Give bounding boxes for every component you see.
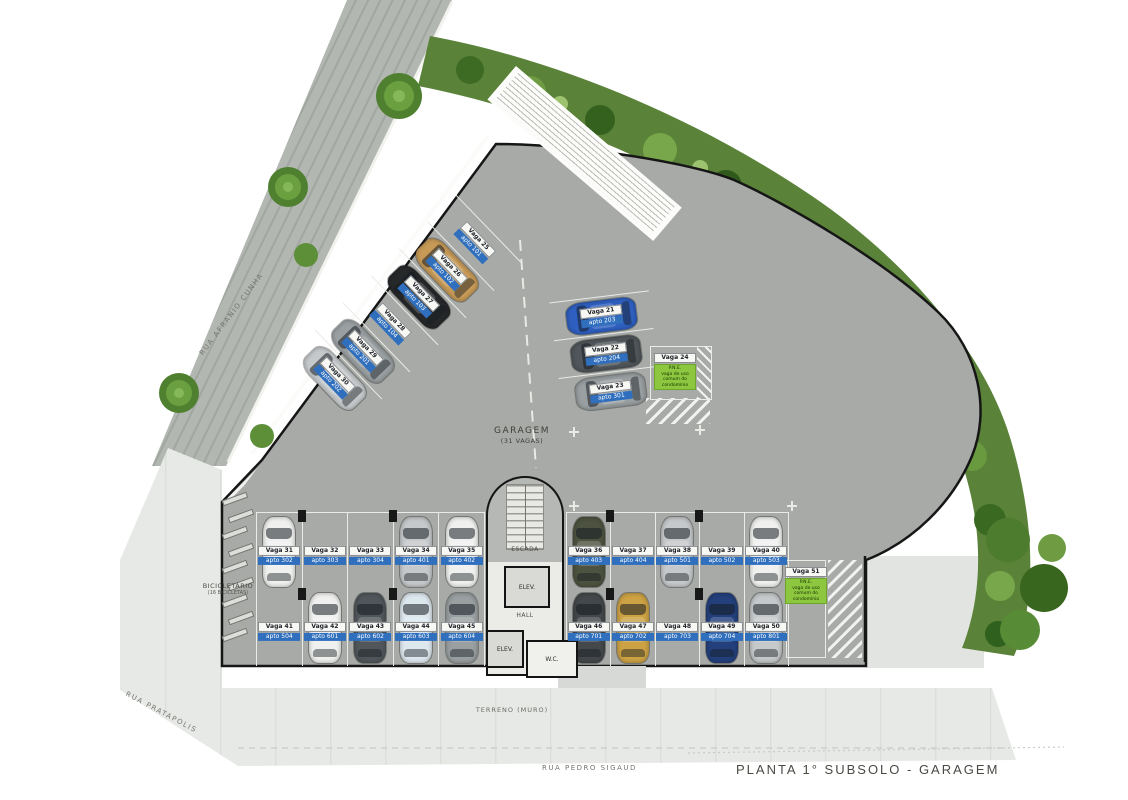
stall-tag: Vaga 38apto 501 (656, 545, 698, 564)
windshield (403, 528, 429, 539)
column-post (389, 588, 397, 600)
parking-stall: Vaga 32apto 303 (303, 513, 348, 590)
stall-tag-apto: apto 501 (656, 556, 698, 564)
stall-tag: Vaga 45apto 604 (441, 622, 483, 641)
parking-bay: Vaga 39apto 502Vaga 49apto 704 (699, 513, 743, 666)
windshield (664, 528, 690, 539)
stall-tag: Vaga 41apto 504 (258, 622, 300, 641)
stall-tag-vaga: Vaga 47 (612, 622, 654, 632)
windshield (357, 604, 383, 615)
site-plan-canvas: RUA AFRANIO CUNHA RUA PRATAPOLIS RUA PED… (0, 0, 1128, 800)
stall-tag: Vaga 37apto 404 (612, 545, 654, 564)
stall-tag-vaga: Vaga 45 (441, 622, 483, 632)
stall-tag: Vaga 40apto 503 (745, 545, 787, 564)
bike-rack-icon (228, 543, 254, 558)
stall-tag: Vaga 49apto 704 (701, 622, 743, 641)
column-post (389, 510, 397, 522)
stall-tag-vaga: Vaga 46 (568, 622, 610, 632)
stall-tag-vaga: Vaga 48 (656, 622, 698, 632)
core-stairs (506, 484, 544, 550)
stall-tag-vaga: Vaga 42 (304, 622, 346, 632)
bike-rack-icon (222, 526, 248, 541)
stall-tag: Vaga 32apto 303 (304, 545, 346, 564)
stall-tag-apto: apto 801 (745, 633, 787, 641)
parking-stall: Vaga 44apto 603 (394, 590, 439, 666)
windshield (449, 528, 475, 539)
bicicletario-title: BICICLETÁRIO (176, 582, 280, 590)
parking-stall: Vaga 41apto 504 (257, 590, 302, 666)
parking-group-right: Vaga 36apto 403Vaga 46apto 701Vaga 37apt… (566, 512, 789, 666)
stall-tag-apto: apto 701 (568, 633, 610, 641)
column-post (606, 588, 614, 600)
stall-tag: Vaga 31apto 302 (258, 545, 300, 564)
wc-room: W.C. (526, 640, 578, 678)
elevator-room: ELEV. (504, 566, 550, 608)
garage-label: GARAGEM (31 VAGAS) (462, 426, 582, 445)
parking-stall: Vaga 45apto 604 (439, 590, 484, 666)
parking-group-left: Vaga 31apto 302Vaga 41apto 504Vaga 32apt… (256, 512, 485, 666)
windshield (753, 604, 779, 615)
stall-tag-vaga: Vaga 33 (349, 545, 391, 555)
windshield (403, 604, 429, 615)
rear-window (621, 649, 645, 657)
column-post (606, 510, 614, 522)
parking-stall: Vaga 37apto 404 (611, 513, 654, 590)
stall-tag-vaga: Vaga 35 (441, 545, 483, 555)
windshield (576, 604, 602, 615)
stall-tag: Vaga 47apto 702 (612, 622, 654, 641)
stall-tag: Vaga 36apto 403 (568, 545, 610, 564)
stall-tag: Vaga 43apto 602 (349, 622, 391, 641)
terreno-label: TERRENO (MURO) (442, 706, 582, 714)
stall-tag-vaga: Vaga 50 (745, 622, 787, 632)
stall-tag-apto: apto 703 (656, 633, 698, 641)
stall-tag-apto: apto 402 (441, 556, 483, 564)
hatch-stripes (697, 347, 711, 399)
garage-label-title: GARAGEM (462, 426, 582, 436)
parking-bay: Vaga 38apto 501Vaga 48apto 703 (655, 513, 699, 666)
stall-tag-apto: apto 302 (258, 556, 300, 564)
parking-bay: Vaga 35apto 402Vaga 45apto 604 (438, 513, 484, 666)
pne-note: P.N.E. vaga de uso comum do condomínio (654, 364, 696, 390)
stall-tag-apto: apto 602 (349, 633, 391, 641)
bike-rack-icon (228, 611, 254, 626)
page-title: PLANTA 1° SUBSOLO - GARAGEM (736, 762, 999, 777)
stall-tag-vaga: Vaga 41 (258, 622, 300, 632)
parking-group-trio: Vaga 21apto 203Vaga 22apto 204Vaga 23apt… (549, 290, 662, 415)
garage-label-capacity: (31 VAGAS) (462, 437, 582, 445)
stall-tag-vaga: Vaga 49 (701, 622, 743, 632)
parking-stall: Vaga 33apto 304 (348, 513, 393, 590)
stall-tag-vaga: Vaga 44 (395, 622, 437, 632)
rear-window (404, 573, 428, 581)
hatch-zone (828, 560, 862, 658)
column-post (298, 510, 306, 522)
bicicletario-capacity: (16 BICICLETAS) (176, 590, 280, 596)
side-paving (866, 556, 984, 668)
parking-bay: Vaga 33apto 304Vaga 43apto 602 (347, 513, 393, 666)
stall-tag-vaga: Vaga 24 (654, 353, 696, 363)
parking-stall: Vaga 40apto 503 (745, 513, 788, 590)
parking-stall: Vaga 31apto 302 (257, 513, 302, 590)
windshield (312, 604, 338, 615)
stall-tag-vaga: Vaga 43 (349, 622, 391, 632)
stall-tag-vaga: Vaga 36 (568, 545, 610, 555)
pne-stall-upper: Vaga 24 P.N.E. vaga de uso comum do cond… (650, 346, 712, 400)
windshield (620, 604, 646, 615)
stall-tag: Vaga 39apto 502 (701, 545, 743, 564)
pne-note: P.N.E. vaga de uso comum do condomínio (785, 578, 827, 604)
bike-rack-area (222, 496, 254, 638)
rear-window (665, 573, 689, 581)
stall-tag-vaga: Vaga 40 (745, 545, 787, 555)
pne-note-line: comum do condomínio (655, 377, 695, 388)
parking-stall: Vaga 43apto 602 (348, 590, 393, 666)
stall-tag-apto: apto 404 (612, 556, 654, 564)
stall-tag-apto: apto 303 (304, 556, 346, 564)
stall-tag: Vaga 44apto 603 (395, 622, 437, 641)
rear-window (754, 573, 778, 581)
stall-tag-apto: apto 704 (701, 633, 743, 641)
stall-tag-vaga: Vaga 38 (656, 545, 698, 555)
parking-stall: Vaga 36apto 403 (567, 513, 610, 590)
pne-stall-lower: Vaga 51 P.N.E. vaga de uso comum do cond… (786, 560, 826, 658)
stall-tag-vaga: Vaga 32 (304, 545, 346, 555)
rear-window (313, 649, 337, 657)
rear-window (267, 573, 291, 581)
stall-tag-apto: apto 601 (304, 633, 346, 641)
parking-stall: Vaga 50apto 801 (745, 590, 788, 666)
parking-bay: Vaga 32apto 303Vaga 42apto 601 (302, 513, 348, 666)
column-post (695, 510, 703, 522)
stall-tag-vaga: Vaga 31 (258, 545, 300, 555)
stairs-label: ESCADA (489, 546, 561, 553)
parking-stall: Vaga 42apto 601 (303, 590, 348, 666)
stall-tag-apto: apto 604 (441, 633, 483, 641)
stall-tag-apto: apto 401 (395, 556, 437, 564)
rear-window (450, 649, 474, 657)
bike-rack-icon (222, 560, 248, 575)
stall-tag-apto: apto 603 (395, 633, 437, 641)
stall-tag-vaga: Vaga 37 (612, 545, 654, 555)
elevator-room: ELEV. (486, 630, 524, 668)
stall-tag-apto: apto 403 (568, 556, 610, 564)
rear-window (710, 649, 734, 657)
parking-stall: Vaga 39apto 502 (700, 513, 743, 590)
stall-tag-vaga: Vaga 34 (395, 545, 437, 555)
pne-note-line: comum do condomínio (786, 591, 826, 602)
stall-tag-vaga: Vaga 39 (701, 545, 743, 555)
parking-bay: Vaga 34apto 401Vaga 44apto 603 (393, 513, 439, 666)
parking-bay: Vaga 40apto 503Vaga 50apto 801 (744, 513, 788, 666)
stall-tag: Vaga 34apto 401 (395, 545, 437, 564)
rear-window (404, 649, 428, 657)
bike-rack-icon (228, 509, 254, 524)
parking-stall: Vaga 35apto 402 (439, 513, 484, 590)
stall-tag-vaga: Vaga 51 (785, 567, 827, 577)
rear-window (577, 649, 601, 657)
stall-tag: Vaga 46apto 701 (568, 622, 610, 641)
parking-stall: Vaga 34apto 401 (394, 513, 439, 590)
column-post (695, 588, 703, 600)
hall-label: HALL (486, 612, 564, 619)
parking-stall: Vaga 48apto 703 (656, 590, 699, 666)
stall-tag-apto: apto 304 (349, 556, 391, 564)
stall-tag-apto: apto 504 (258, 633, 300, 641)
rear-window (577, 573, 601, 581)
parking-bay: Vaga 37apto 404Vaga 47apto 702 (610, 513, 654, 666)
windshield (753, 528, 779, 539)
stall-tag: Vaga 35apto 402 (441, 545, 483, 564)
stall-tag-apto: apto 503 (745, 556, 787, 564)
parking-stall: Vaga 47apto 702 (611, 590, 654, 666)
windshield (266, 528, 292, 539)
windshield (709, 604, 735, 615)
stall-tag-apto: apto 702 (612, 633, 654, 641)
bicicletario-label: BICICLETÁRIO (16 BICICLETAS) (176, 582, 280, 596)
windshield (576, 528, 602, 539)
stall-tag: Vaga 33apto 304 (349, 545, 391, 564)
stall-tag: Vaga 48apto 703 (656, 622, 698, 641)
street-label-bottom: RUA PEDRO SIGAUD (542, 764, 637, 772)
rear-window (450, 573, 474, 581)
parking-stall: Vaga 38apto 501 (656, 513, 699, 590)
windshield (449, 604, 475, 615)
rear-window (754, 649, 778, 657)
stall-tag: Vaga 42apto 601 (304, 622, 346, 641)
stall-tag-apto: apto 502 (701, 556, 743, 564)
rear-window (358, 649, 382, 657)
stall-tag: Vaga 50apto 801 (745, 622, 787, 641)
column-post (298, 588, 306, 600)
parking-stall: Vaga 49apto 704 (700, 590, 743, 666)
